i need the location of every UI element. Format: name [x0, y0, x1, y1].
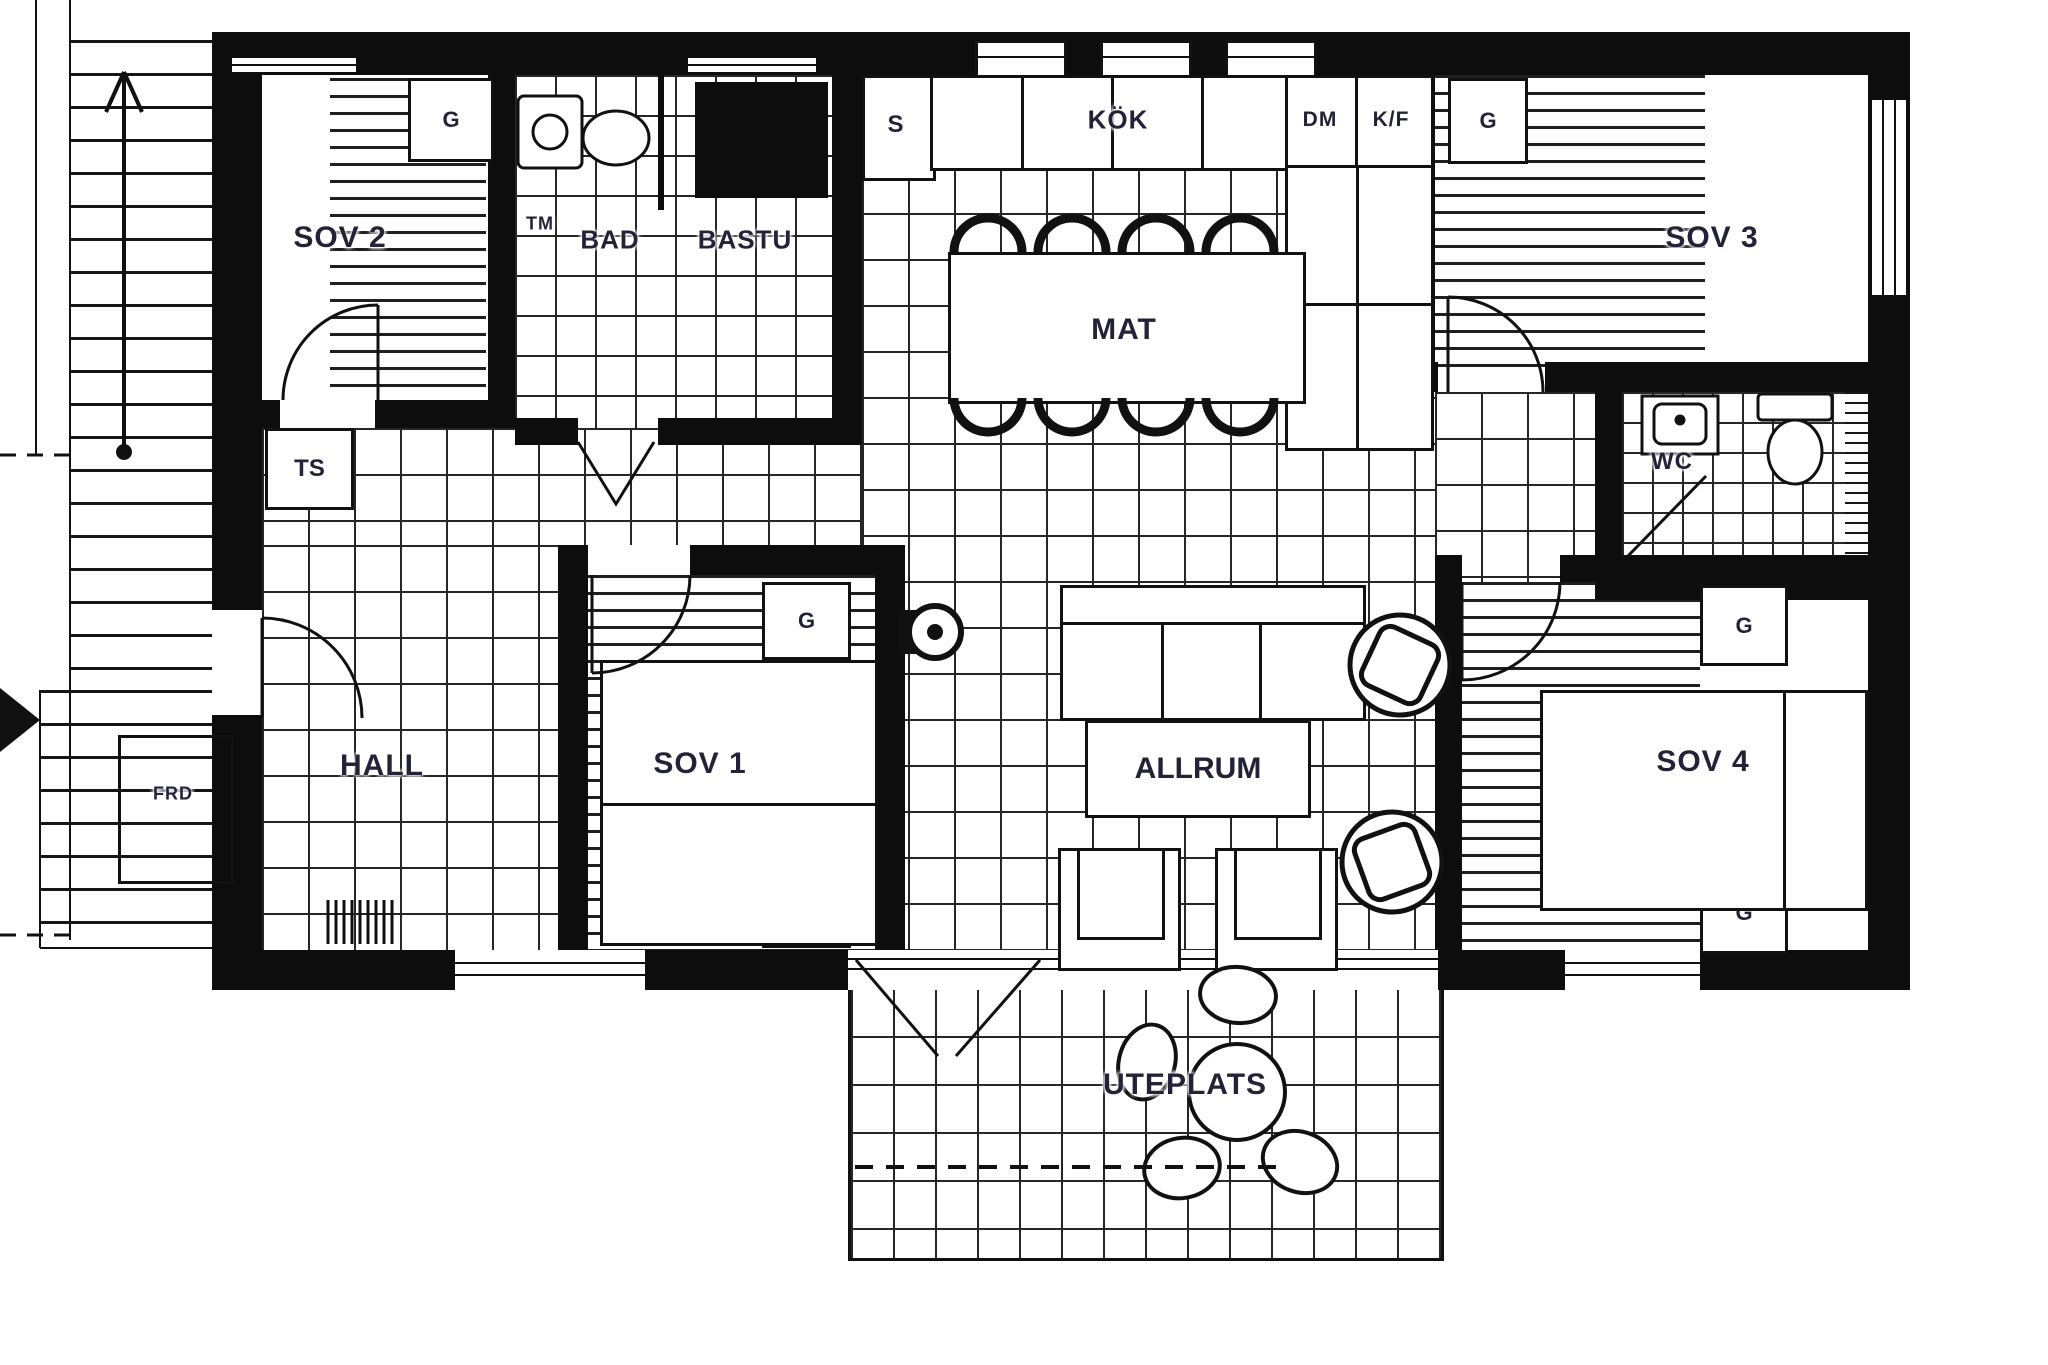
site-lines — [0, 0, 1285, 1167]
wc-sink-drain — [1676, 416, 1684, 424]
toilet-tank-icon — [1758, 394, 1832, 420]
fixture-label-dm: DM — [1303, 108, 1338, 132]
room-label-kok: KÖK — [1088, 105, 1149, 136]
room-label-sov1: SOV 1 — [653, 747, 746, 781]
entry-mat-hatch — [328, 900, 392, 944]
sov3-door-icon — [1448, 297, 1543, 392]
sov2-door-icon — [283, 305, 378, 400]
entrance-arrow-icon — [0, 688, 40, 752]
room-label-frd: FRD — [153, 784, 193, 805]
toilet-bowl-icon — [1768, 420, 1822, 484]
bad-sink-icon — [583, 111, 649, 165]
room-label-sov3: SOV 3 — [1665, 221, 1758, 255]
fixture-label-s: S — [887, 111, 904, 139]
fixture-label-tm: TM — [526, 214, 554, 235]
uteplats-door-icon — [856, 960, 1040, 1056]
room-label-mat: MAT — [1091, 313, 1157, 347]
room-label-uteplats: UTEPLATS — [1103, 1068, 1267, 1102]
room-label-sov4: SOV 4 — [1656, 745, 1749, 779]
wc-door-icon — [1628, 476, 1706, 556]
swivel-chair-2 — [1342, 812, 1442, 912]
entrance-door-icon — [262, 618, 362, 718]
room-label-hall: HALL — [340, 749, 424, 783]
room-label-sov2: SOV 2 — [293, 221, 386, 255]
stair-arrow-icon — [106, 72, 142, 458]
room-label-bad: BAD — [580, 225, 639, 256]
stove-icon — [898, 606, 961, 658]
fixture-label-kf: K/F — [1373, 108, 1410, 132]
floor-plan: G G G G G G TS ALLRUM — [0, 0, 2048, 1365]
symbol-overlay — [0, 0, 2048, 1365]
sov4-door-icon — [1462, 582, 1560, 680]
sov1-door-icon — [592, 575, 690, 673]
room-label-wc: WC — [1651, 448, 1693, 476]
room-label-bastu: BASTU — [698, 225, 793, 256]
swivel-chair-1 — [1350, 615, 1450, 715]
bad-door-icon — [578, 442, 654, 504]
washing-machine-drum — [533, 115, 567, 149]
